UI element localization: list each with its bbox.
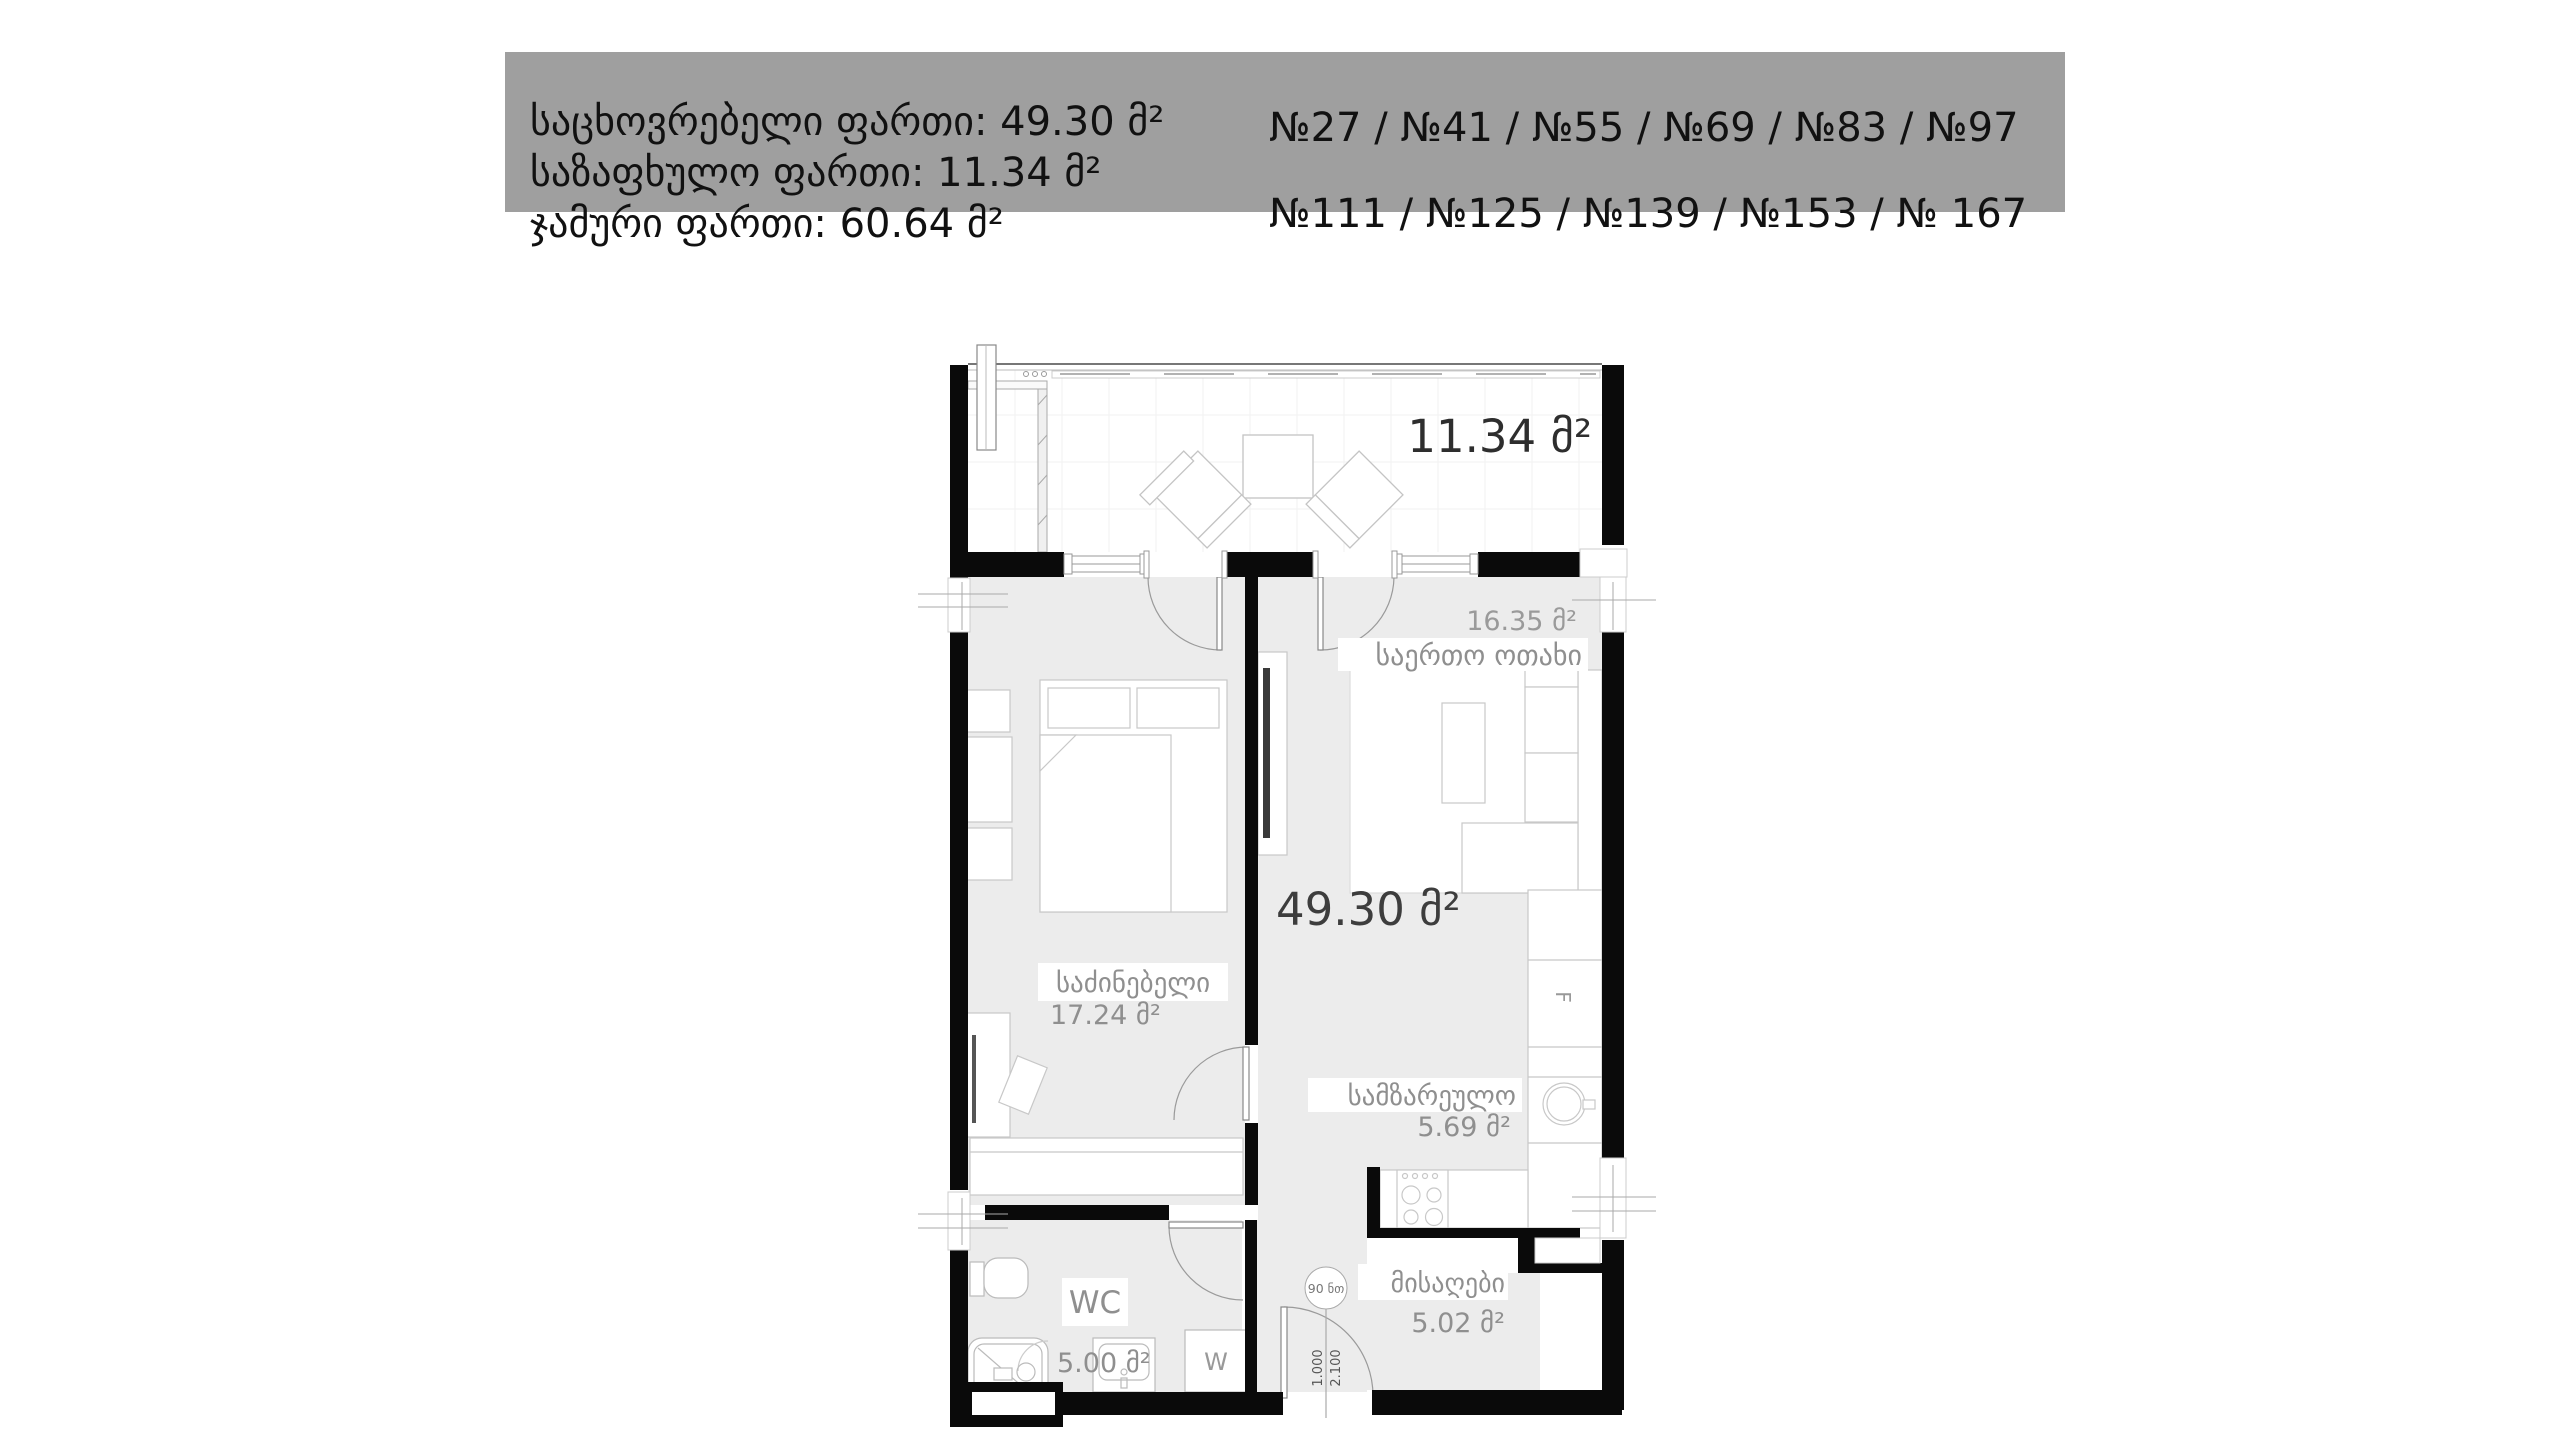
wall-kitchen-left	[1367, 1167, 1380, 1238]
toilet-tank	[970, 1262, 984, 1296]
dresser	[966, 737, 1012, 822]
kitchen-counter-right	[1528, 890, 1602, 1228]
sofa-chaise	[1462, 823, 1578, 893]
column-top-right	[1580, 549, 1627, 577]
fridge-label: F	[1551, 991, 1575, 1003]
wardrobe	[970, 1138, 1243, 1195]
entry-door-height: 2.100	[1329, 1349, 1344, 1386]
sofa-back	[1578, 670, 1602, 893]
wall-niche-bottom	[1535, 1263, 1602, 1273]
wc-door-leaf	[1169, 1222, 1243, 1228]
wall-niche-left	[1518, 1238, 1535, 1273]
desk-screen	[972, 1035, 976, 1123]
living-room-name: საერთო ოთახი	[1376, 639, 1582, 672]
living-balcony-door-leaf	[1318, 577, 1323, 650]
balcony-partition	[1038, 389, 1047, 552]
wall-center-divider-low	[1245, 1123, 1258, 1205]
wall-wc-top	[985, 1205, 1169, 1220]
wall-right-mid	[1602, 630, 1624, 1158]
toilet-bowl	[984, 1258, 1028, 1298]
bedroom-area: 17.24 მ²	[1050, 1000, 1161, 1031]
apartment-area-label: 49.30 მ²	[1276, 883, 1461, 936]
bed-blanket	[1040, 735, 1171, 912]
sink-tap	[1583, 1100, 1595, 1109]
entry-door-width: 1.000	[1311, 1349, 1326, 1386]
hall-name: მისაღები	[1391, 1269, 1505, 1299]
wc-area: 5.00 მ²	[1057, 1348, 1151, 1379]
coffee-table	[1442, 703, 1485, 803]
sofa-armrest	[1525, 670, 1578, 687]
tv	[1263, 668, 1270, 838]
floor-plan-svg: 11.34 მ² 49.30 მ² 16.35 მ² საერთო ოთახი …	[0, 0, 2560, 1445]
sofa-cushion-2	[1525, 753, 1578, 822]
wall-kitchen-bottom	[1367, 1228, 1580, 1238]
nightstand-top	[966, 690, 1010, 732]
bed-pillow-right	[1137, 688, 1219, 728]
entry-door-leaf	[1281, 1307, 1287, 1398]
washer-label: W	[1204, 1348, 1228, 1376]
wc-name: WC	[1069, 1285, 1121, 1321]
hall-area: 5.02 მ²	[1411, 1308, 1505, 1339]
bedroom-name: საძინებელი	[1056, 968, 1210, 999]
living-door-gap	[1317, 552, 1394, 577]
bedroom-balcony-door-leaf	[1217, 577, 1222, 650]
kitchen-name: სამზარეულო	[1348, 1081, 1516, 1112]
shower-faucet	[994, 1368, 1012, 1380]
floorplan-page: საცხოვრებელი ფართი: 49.30 მ² საზაფხულო ფ…	[0, 0, 2560, 1445]
tv-console	[1258, 652, 1287, 855]
living-room-area: 16.35 მ²	[1466, 606, 1577, 637]
balcony-area-label: 11.34 მ²	[1407, 410, 1592, 463]
wall-window-left	[968, 552, 1064, 577]
wall-hall-left	[1245, 1220, 1257, 1392]
wall-left-top	[950, 365, 968, 580]
bedroom-door-leaf	[1243, 1047, 1249, 1120]
wall-left-mid	[950, 630, 968, 1190]
wall-window-right	[1478, 552, 1580, 577]
niche	[1535, 1238, 1600, 1263]
door-size-text: 90 ნთ	[1308, 1281, 1344, 1296]
sofa-cushion-1	[1525, 687, 1578, 753]
wall-window-center	[1225, 552, 1317, 577]
bedroom-door-gap	[1148, 552, 1223, 577]
kitchen-area: 5.69 მ²	[1417, 1112, 1511, 1143]
nightstand-bottom	[966, 828, 1012, 880]
wall-bottom-right	[1372, 1390, 1622, 1415]
wall-center-divider	[1245, 577, 1258, 1045]
bed-pillow-left	[1048, 688, 1130, 728]
wall-bottom-left	[1063, 1392, 1283, 1415]
wall-right-bottom	[1602, 1240, 1624, 1410]
wall-right-top	[1602, 365, 1624, 545]
balcony-table	[1243, 435, 1313, 498]
